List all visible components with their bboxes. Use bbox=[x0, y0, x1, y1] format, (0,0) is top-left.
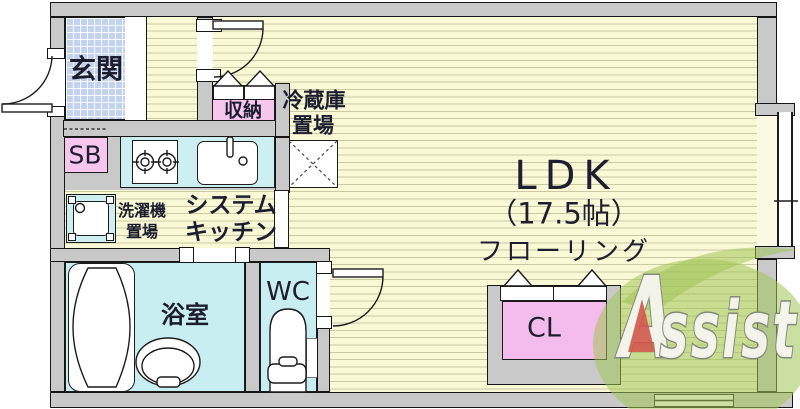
floor-plan: 玄関 SB 収納 冷蔵庫 置場 洗濯機 置場 システム キッチン LDK （17… bbox=[0, 0, 800, 409]
logo-rest: ssist bbox=[660, 286, 798, 376]
assist-logo: A ssist bbox=[0, 0, 800, 409]
